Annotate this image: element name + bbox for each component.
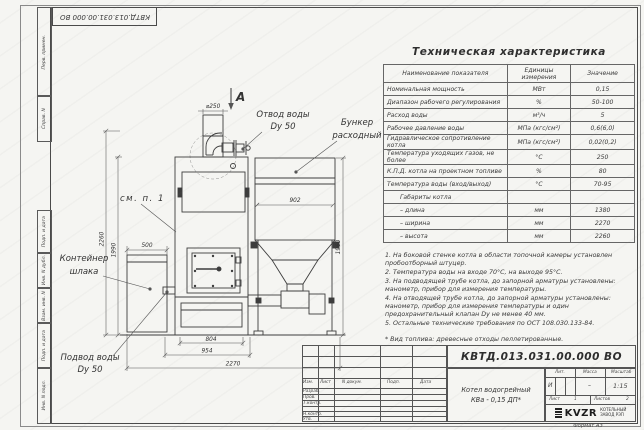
tech-table-title: Техническая характеристика xyxy=(383,46,635,58)
table-row: Диапазон рабочего регулирования%50-100 xyxy=(384,96,635,109)
slag-container-label2: шлака xyxy=(70,267,99,277)
leader-lines xyxy=(103,88,337,356)
dim-hopper-height: 1960 xyxy=(336,239,342,254)
dim-boiler-height: 1990 xyxy=(112,242,118,257)
technical-notes: 1. На боковой стенке котла в области топ… xyxy=(385,252,638,345)
tech-table-header: Наименование показателя Единицы измерени… xyxy=(384,65,635,83)
table-row: Расход водым³/ч5 xyxy=(384,109,635,122)
sheets-label: Листов xyxy=(594,397,610,402)
col-podp: Подп. xyxy=(387,380,400,385)
dim-hopper-width: 902 xyxy=(289,198,300,204)
kvzr-logo-text: KVZR xyxy=(565,408,597,419)
role-prov: Пров. xyxy=(303,395,316,400)
tech-characteristics: Техническая характеристика Наименование … xyxy=(383,46,635,243)
format-note: Формат А3 xyxy=(540,423,636,429)
col-list: Лист xyxy=(320,380,331,385)
title-block: Изм. Лист N докум. Подп. Дата Разраб. Пр… xyxy=(302,345,636,422)
water-inlet-label: Подвод воды xyxy=(60,353,119,363)
role-utv: Утв. xyxy=(303,417,312,422)
table-row: Рабочее давление водыМПа (кгс/см²)0,6(6,… xyxy=(384,122,635,135)
dim-base-width: 954 xyxy=(201,349,212,355)
col-units: Единицы измерения xyxy=(507,65,571,83)
water-inlet-size: Dy 50 xyxy=(77,365,102,375)
note-line: 3. На подводящей трубе котла, до запорно… xyxy=(385,278,638,294)
fuel-type-note: * Вид топлива: древесные отходы пеллетир… xyxy=(385,336,638,344)
table-row: Номинальная мощностьМВт0,15 xyxy=(384,83,635,96)
boiler-geometry xyxy=(120,115,345,335)
note-line: 5. Остальные технические требования по О… xyxy=(385,320,638,328)
product-name-line1: Котел водогрейный xyxy=(461,386,530,394)
table-row: – высотамм2260 xyxy=(384,230,635,243)
col-izm: Изм. xyxy=(303,380,313,385)
table-row: – длинамм1380 xyxy=(384,204,635,217)
note-line: 2. Температура воды на входе 70°С, на вы… xyxy=(385,269,638,277)
dim-chimney: ⌀250 xyxy=(206,104,221,110)
table-row: Температура уходящих газов, не более°С25… xyxy=(384,150,635,165)
sheets-value: 2 xyxy=(626,397,629,402)
dim-slag-width: 500 xyxy=(141,243,152,249)
table-row: Температура воды (вход/выход)°С70-95 xyxy=(384,178,635,191)
kvzr-logo-icon xyxy=(555,408,562,417)
hopper-label: Бункер xyxy=(341,118,373,128)
role-razrab: Разраб. xyxy=(303,389,320,394)
table-row: Габариты котла xyxy=(384,191,635,204)
drawing-sheet: Перв. примен. Справ. N Подп. и дата Инв.… xyxy=(0,0,644,430)
lit-value: И xyxy=(548,382,553,389)
sheet-label: Лист xyxy=(549,397,560,402)
hopper-label2: расходный xyxy=(331,131,382,141)
table-row: – ширинамм2270 xyxy=(384,217,635,230)
water-outlet-label: Отвод воды xyxy=(256,110,310,120)
col-ndokum: N докум. xyxy=(342,380,362,385)
table-row: Гидравлическое сопротивление котлаМПа (к… xyxy=(384,135,635,150)
col-name: Наименование показателя xyxy=(384,65,508,83)
water-outlet-size: Dy 50 xyxy=(270,122,295,132)
mass-label: Масса xyxy=(583,370,597,375)
col-value: Значение xyxy=(571,65,635,83)
table-row: К.П.Д. котла на проектном топливе%80 xyxy=(384,165,635,178)
note-line: 1. На боковой стенке котла в области топ… xyxy=(385,252,638,268)
company-logo-cell: KVZR КОТЕЛЬНЫЙ ЗАВОД РЭП xyxy=(545,404,636,422)
view-a-label: А xyxy=(235,90,245,104)
role-tkontr: Т.контр. xyxy=(303,401,322,406)
note-line: 4. На отводящей трубе котла, до запорной… xyxy=(385,295,638,319)
dim-total-width: 2270 xyxy=(226,362,241,368)
scale-label: Масштаб xyxy=(611,370,631,375)
mass-value: – xyxy=(588,382,591,389)
see-note-label: см. п. 1 xyxy=(120,194,165,204)
product-name-line2: КВа - 0,15 ДП* xyxy=(471,396,521,404)
document-number: КВТД.013.031.00.000 ВО xyxy=(447,345,636,368)
tech-table: Наименование показателя Единицы измерени… xyxy=(383,64,635,243)
slag-container-label: Контейнер xyxy=(60,254,109,264)
company-name: КОТЕЛЬНЫЙ ЗАВОД РЭП xyxy=(600,408,626,417)
lit-label: Лит. xyxy=(555,370,565,375)
sheet-value: 1 xyxy=(574,397,577,402)
door-bolts xyxy=(194,255,233,287)
dim-total-height: 2260 xyxy=(100,231,106,246)
col-data: Дата xyxy=(420,380,431,385)
product-name: Котел водогрейный КВа - 0,15 ДП* xyxy=(447,368,545,422)
dim-door-width: 804 xyxy=(205,337,216,343)
scale-value: 1:15 xyxy=(613,382,628,390)
